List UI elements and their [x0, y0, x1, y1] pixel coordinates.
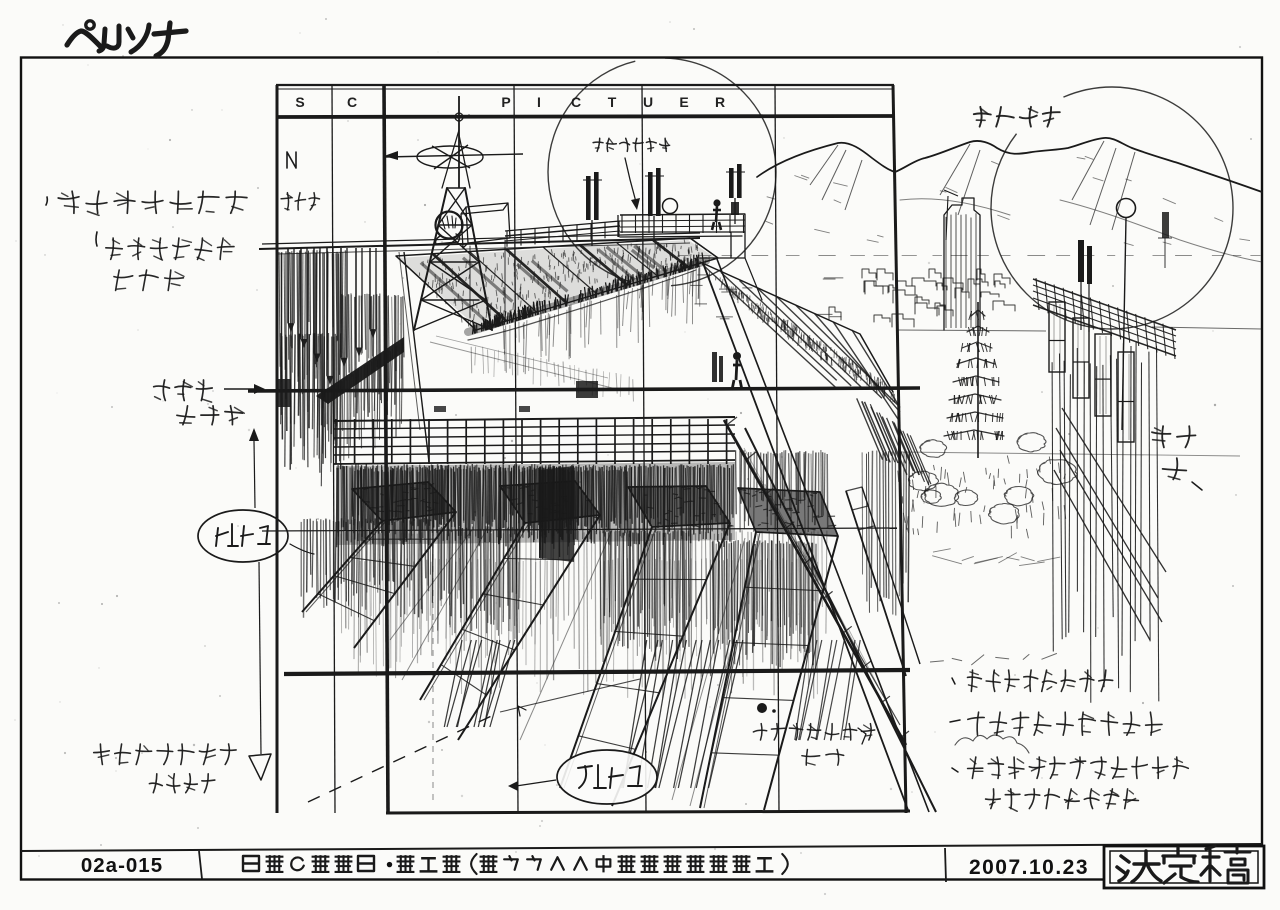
svg-text:C: C [347, 94, 357, 110]
svg-text:E: E [679, 94, 688, 110]
svg-text:S: S [295, 94, 304, 110]
svg-text:R: R [715, 94, 725, 110]
svg-text:02a-015: 02a-015 [81, 854, 163, 877]
svg-text:I: I [537, 94, 541, 110]
svg-text:U: U [643, 94, 653, 110]
svg-text:T: T [608, 94, 617, 110]
svg-text:P: P [501, 94, 510, 110]
svg-text:2007.10.23: 2007.10.23 [969, 856, 1089, 879]
